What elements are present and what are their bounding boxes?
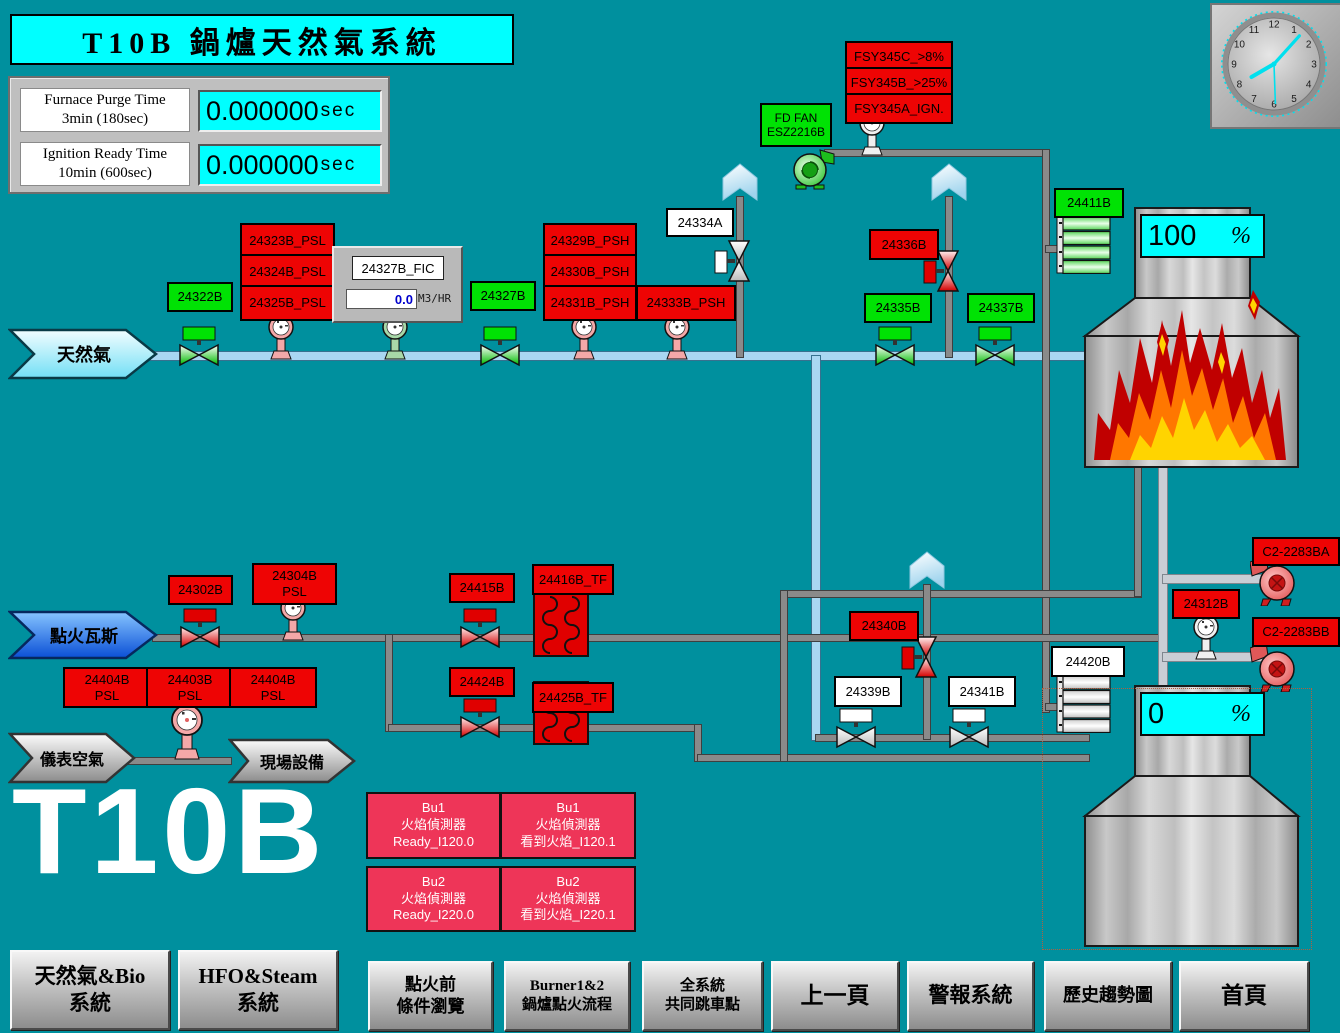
alarm-24404b-psl-1: 24404BPSL — [63, 667, 151, 708]
banner-instrument-air-label: 儀表空氣 — [39, 750, 104, 769]
fic-controller-panel[interactable]: 24327B_FIC 0.0 M3/HR — [332, 246, 463, 323]
tag-24411b: 24411B — [1054, 188, 1124, 218]
svg-text:10: 10 — [1234, 40, 1246, 51]
banner-ignition-gas-label: 點火瓦斯 — [49, 626, 118, 646]
clock-widget: 12 1 2 3 4 5 6 7 8 9 10 11 — [1210, 3, 1340, 129]
fan-c2-2283bb-icon[interactable] — [1250, 642, 1298, 692]
purge-time-label: Furnace Purge Time3min (180sec) — [20, 88, 190, 132]
valve-24424b[interactable] — [458, 697, 502, 739]
valve-24339b[interactable] — [834, 707, 878, 749]
nav-alarm-system-button[interactable]: 警報系統 — [907, 961, 1034, 1031]
page-title: T10B 鍋爐天然氣系統 — [10, 14, 514, 65]
pipe-natural-gas-down — [811, 355, 821, 741]
nav-pre-ignition-button[interactable]: 點火前條件瀏覽 — [368, 961, 493, 1031]
nav-trip-points-button[interactable]: 全系統共同跳車點 — [642, 961, 763, 1031]
vent-arrow-icon — [908, 550, 946, 590]
banner-instrument-air: 儀表空氣 — [8, 732, 136, 784]
tag-24312b: 24312B — [1172, 589, 1240, 619]
nav-previous-page-button[interactable]: 上一頁 — [771, 961, 899, 1031]
furnace-upper-load-value: 100 — [1148, 220, 1196, 253]
fic-tag: 24327B_FIC — [352, 256, 444, 280]
alarm-fsy345a: FSY345A_IGN. — [845, 93, 953, 124]
flame-detector-bu1-flame: Bu1 火焰偵測器 看到火焰_I120.1 — [500, 792, 636, 859]
alarm-24333b-psh: 24333B_PSH — [636, 285, 736, 321]
flame-detector-bu2-ready: Bu2 火焰偵測器 Ready_I220.0 — [366, 866, 501, 932]
clock-icon: 12 1 2 3 4 5 6 7 8 9 10 11 — [1212, 5, 1336, 123]
svg-text:2: 2 — [1306, 40, 1312, 51]
svg-text:6: 6 — [1271, 100, 1277, 111]
tag-24340b: 24340B — [849, 611, 919, 641]
tag-24341b: 24341B — [948, 676, 1016, 707]
valve-24415b[interactable] — [458, 607, 502, 649]
valve-24335b[interactable] — [873, 325, 917, 367]
furnace-upper-load-unit: % — [1231, 223, 1251, 250]
alarm-24325b-psl: 24325B_PSL — [240, 285, 335, 321]
ignition-ready-label: Ignition Ready Time10min (600sec) — [20, 142, 190, 186]
tag-24424b: 24424B — [449, 667, 515, 697]
tag-24339b: 24339B — [834, 676, 902, 707]
fic-value: 0.0 — [346, 289, 417, 309]
svg-text:1: 1 — [1291, 25, 1297, 36]
svg-text:3: 3 — [1311, 60, 1317, 71]
vent-arrow-icon — [930, 162, 968, 202]
svg-text:5: 5 — [1291, 94, 1297, 105]
nav-burner-sequence-button[interactable]: Burner1&2鍋爐點火流程 — [504, 961, 630, 1031]
gauge-24312b — [1190, 614, 1222, 660]
pipe-furnace1-drain — [1134, 465, 1142, 597]
svg-text:9: 9 — [1231, 60, 1237, 71]
nav-home-button[interactable]: 首頁 — [1179, 961, 1309, 1031]
svg-text:12: 12 — [1268, 20, 1280, 31]
fd-fan-icon[interactable] — [790, 144, 836, 190]
ignition-ready-value: 0.000000sec — [198, 144, 382, 186]
purge-time-value: 0.000000sec — [198, 90, 382, 132]
burner-register-24411b — [1056, 216, 1112, 274]
tag-24322b: 24322B — [167, 282, 233, 312]
tag-24334a: 24334A — [666, 208, 734, 237]
tag-24415b: 24415B — [449, 573, 515, 603]
alarm-24403b-psl: 24403BPSL — [146, 667, 234, 708]
furnace-upper-load-display: 100 % — [1140, 214, 1265, 258]
tag-24302b: 24302B — [168, 575, 233, 605]
selection-marquee — [1042, 688, 1312, 950]
tag-24327b: 24327B — [470, 281, 536, 311]
pipe-vent-header — [780, 590, 1142, 598]
flame-detector-bu1-ready: Bu1 火焰偵測器 Ready_I120.0 — [366, 792, 501, 859]
flame-detector-bu2-flame: Bu2 火焰偵測器 看到火焰_I220.1 — [500, 866, 636, 932]
tag-24337b: 24337B — [967, 293, 1035, 323]
valve-24322b[interactable] — [177, 325, 221, 367]
pipe-air-downcomer — [1042, 149, 1050, 713]
tag-24335b: 24335B — [864, 293, 932, 323]
svg-text:11: 11 — [1249, 25, 1260, 36]
fic-unit: M3/HR — [418, 292, 451, 305]
valve-24337b[interactable] — [973, 325, 1017, 367]
banner-natural-gas: 天然氣 — [8, 328, 158, 380]
nav-natural-gas-bio-button[interactable]: 天然氣&Bio系統 — [10, 950, 170, 1030]
tag-24425b-tf: 24425B_TF — [532, 682, 614, 713]
valve-24334a[interactable] — [713, 237, 755, 285]
tag-fd-fan: FD FANESZ2216B — [760, 103, 832, 147]
svg-text:7: 7 — [1251, 94, 1257, 105]
banner-ignition-gas: 點火瓦斯 — [8, 610, 158, 660]
pipe-ignition-bu2-run — [697, 754, 1090, 762]
tag-24420b: 24420B — [1051, 646, 1125, 677]
banner-field-equipment-label: 現場設備 — [260, 753, 324, 772]
pipe-ignition-branch-down — [385, 634, 393, 732]
svg-text:4: 4 — [1306, 80, 1312, 91]
tag-24336b: 24336B — [869, 229, 939, 260]
tag-c2-2283bb: C2-2283BB — [1252, 617, 1340, 647]
alarm-24304b-psl: 24304BPSL — [252, 563, 337, 605]
pipe-fan-ba-branch — [1162, 574, 1264, 584]
banner-natural-gas-label: 天然氣 — [57, 344, 111, 365]
alarm-24331b-psh: 24331B_PSH — [543, 285, 637, 321]
valve-24327b[interactable] — [478, 325, 522, 367]
valve-24341b[interactable] — [947, 707, 991, 749]
nav-history-trend-button[interactable]: 歷史趨勢圖 — [1044, 961, 1172, 1031]
coil-24416b-tf — [532, 592, 590, 658]
vent-arrow-icon — [721, 162, 759, 202]
alarm-24404b-psl-2: 24404BPSL — [229, 667, 317, 708]
valve-24302b[interactable] — [178, 607, 222, 649]
hmi-screen: 100 % 0 % 天然氣 點火 — [0, 0, 1340, 1033]
tag-24416b-tf: 24416B_TF — [532, 564, 614, 595]
svg-text:8: 8 — [1237, 80, 1243, 91]
nav-hfo-steam-button[interactable]: HFO&Steam系統 — [178, 950, 338, 1030]
unit-watermark: T10B — [12, 770, 326, 892]
tag-c2-2283ba: C2-2283BA — [1252, 537, 1340, 566]
pipe-vent-header-drop — [780, 590, 788, 762]
banner-field-equipment: 現場設備 — [228, 738, 356, 784]
gauge-instrument-air — [168, 704, 206, 760]
